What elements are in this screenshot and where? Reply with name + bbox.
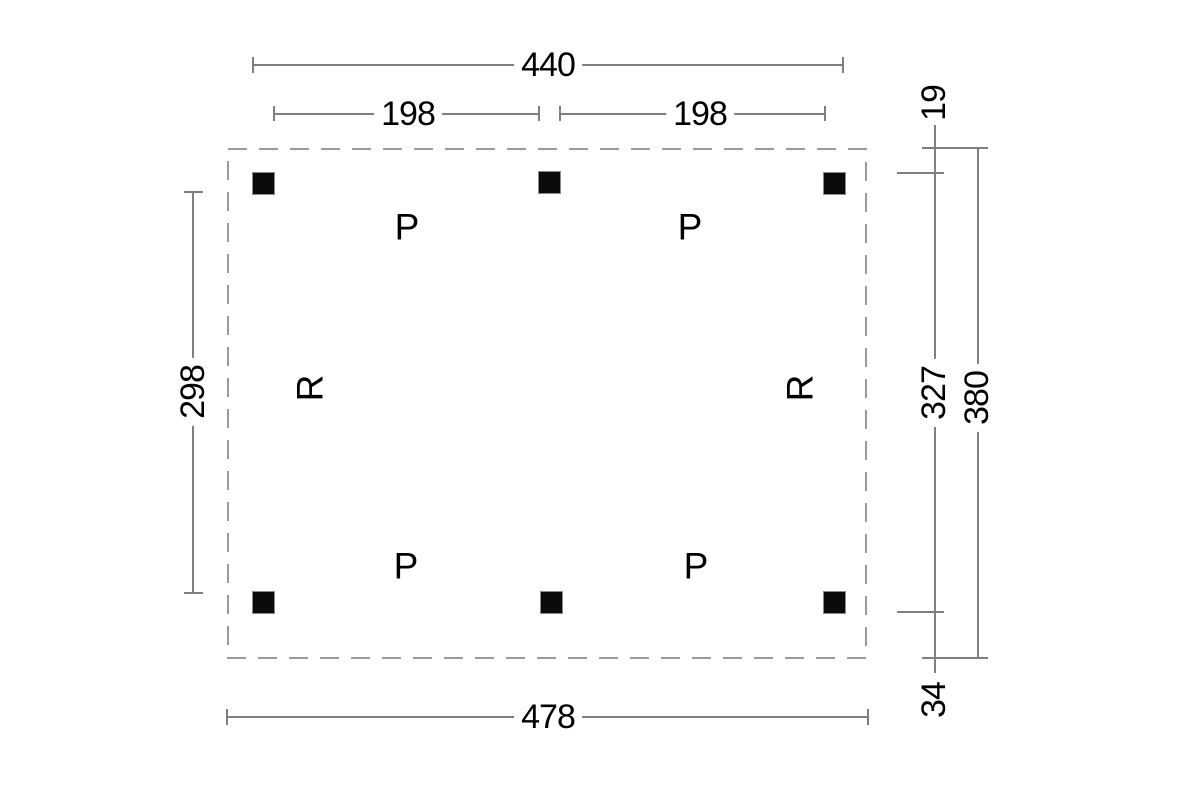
dim-tick: [922, 657, 988, 659]
floor-plan-canvas: 440 198 198 478 298 19 327 380 34 P P P …: [0, 0, 1200, 792]
dim-label-front-overhang: 19: [917, 85, 951, 121]
post-top-right: [824, 173, 845, 194]
post-bottom-left: [253, 592, 274, 613]
dim-tick: [824, 106, 826, 121]
dim-label-posts-depth-overall: 327: [917, 359, 951, 427]
dim-tick: [867, 709, 869, 725]
post-marker-bottom-left: P: [394, 548, 419, 585]
dim-tick: [559, 106, 561, 121]
dim-label-posts-depth-clear: 298: [176, 358, 210, 426]
dim-tick: [226, 709, 228, 725]
dim-tick: [842, 57, 844, 73]
dim-label-bay-left: 198: [374, 97, 442, 131]
dim-tick: [922, 147, 988, 149]
post-marker-top-left: P: [395, 209, 420, 246]
dim-tick: [897, 172, 944, 174]
dim-tick: [252, 57, 254, 73]
post-bottom-middle: [541, 592, 562, 613]
post-marker-bottom-right: P: [684, 548, 709, 585]
dim-label-back-overhang: 34: [917, 682, 951, 718]
dim-label-posts-width-overall: 440: [514, 48, 582, 82]
dim-tick: [184, 191, 203, 193]
post-top-left: [253, 173, 274, 194]
post-marker-top-right: P: [678, 209, 703, 246]
beam-marker-right: R: [782, 375, 819, 402]
post-top-middle: [539, 172, 560, 193]
dim-label-bay-right: 198: [666, 97, 734, 131]
dim-tick: [184, 592, 203, 594]
post-bottom-right: [824, 592, 845, 613]
dim-tick: [897, 611, 944, 613]
dim-tick: [538, 106, 540, 121]
dim-label-depth-overall: 380: [960, 364, 994, 432]
beam-marker-left: R: [292, 375, 329, 402]
dim-tick: [273, 106, 275, 121]
dim-label-width-overall: 478: [514, 700, 582, 734]
